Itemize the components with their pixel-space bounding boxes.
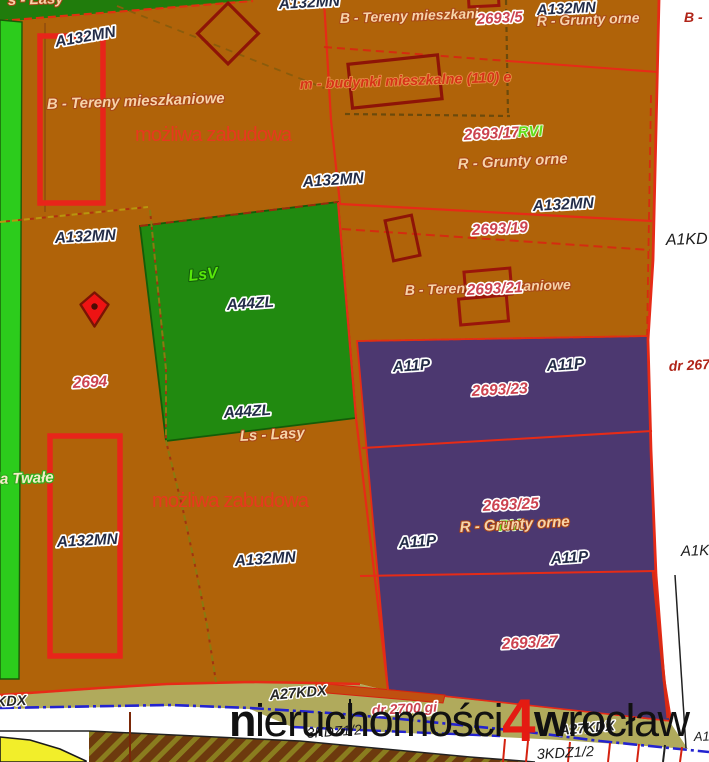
svg-text:7KDX: 7KDX	[0, 693, 28, 711]
svg-text:2693/17: 2693/17	[462, 124, 521, 144]
svg-text:Ls - Lasy: Ls - Lasy	[239, 425, 305, 445]
svg-text:możliwa zabudowa: możliwa zabudowa	[152, 490, 310, 512]
svg-text:ia Twałe: ia Twałe	[0, 469, 54, 488]
svg-text:nieruchomości4wrocław: nieruchomości4wrocław	[229, 687, 691, 754]
svg-text:2693/27: 2693/27	[500, 633, 559, 653]
svg-text:możliwa zabudowa: możliwa zabudowa	[135, 124, 293, 146]
svg-text:2694: 2694	[71, 373, 108, 392]
svg-text:A44ZL: A44ZL	[225, 294, 274, 314]
svg-text:A1: A1	[693, 728, 709, 744]
svg-text:LsV: LsV	[188, 265, 220, 285]
svg-text:A11P: A11P	[391, 356, 431, 376]
svg-text:A11P: A11P	[545, 355, 585, 375]
svg-text:A11P: A11P	[397, 532, 437, 552]
svg-text:2693/23: 2693/23	[470, 380, 528, 400]
svg-text:3KDZ1/2: 3KDZ1/2	[536, 744, 594, 762]
svg-text:2693/19: 2693/19	[470, 219, 528, 239]
svg-text:2693/21: 2693/21	[465, 279, 523, 299]
svg-text:B -: B -	[684, 9, 703, 25]
svg-text:A1K: A1K	[680, 542, 709, 560]
svg-text:A132MN: A132MN	[53, 227, 117, 247]
svg-text:2693/25: 2693/25	[481, 495, 539, 515]
svg-text:A44ZL: A44ZL	[222, 402, 271, 422]
svg-text:A1KD: A1KD	[665, 231, 709, 249]
svg-text:A132MN: A132MN	[531, 195, 595, 215]
svg-text:RVI: RVI	[517, 123, 544, 141]
svg-text:2693/5: 2693/5	[475, 9, 523, 28]
svg-text:dr 267.: dr 267.	[668, 356, 709, 374]
svg-text:A132MN: A132MN	[55, 531, 119, 551]
svg-text:A11P: A11P	[549, 548, 589, 568]
